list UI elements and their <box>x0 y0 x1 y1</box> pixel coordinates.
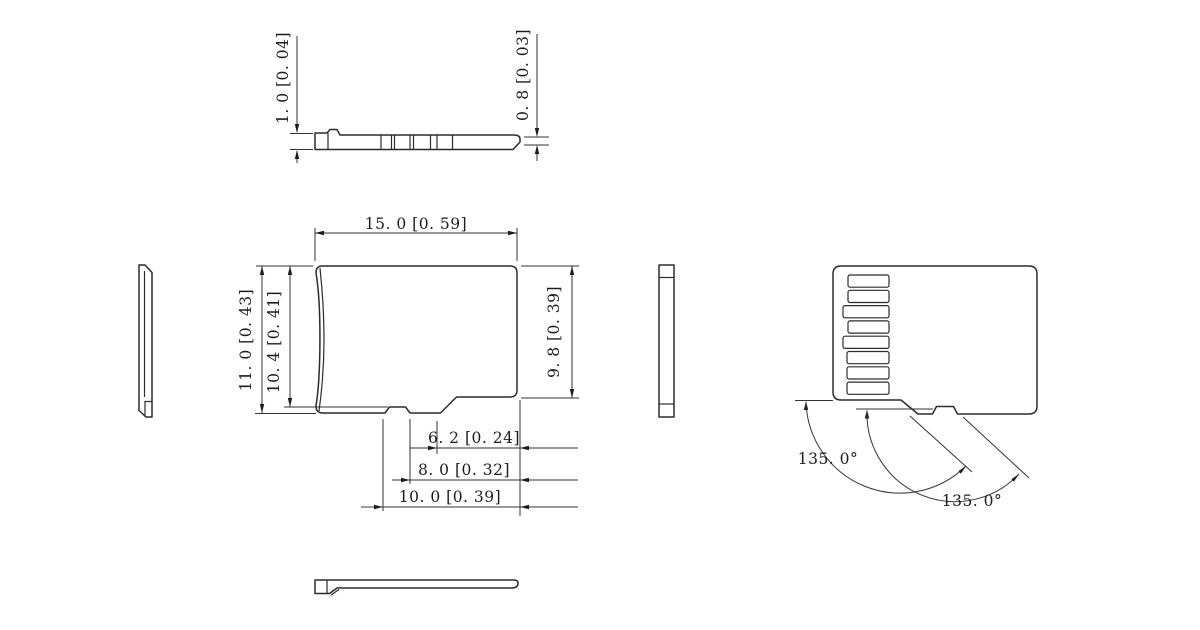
dim-width-15_0: 15. 0 [0. 59] <box>315 215 517 261</box>
dim-thickness-1_0: 1. 0 [0. 04] <box>274 32 313 163</box>
dim-height-9_8-label: 9. 8 [0. 39] <box>545 286 563 378</box>
top-profile-outline <box>315 130 520 150</box>
contact-pad-8 <box>847 382 889 394</box>
front-view: 15. 0 [0. 59] 11. 0 [0. 43] 10. 4 [0. 41… <box>237 215 579 516</box>
contact-pads <box>843 275 889 394</box>
technical-drawing-page: 1. 0 [0. 04] 0. 8 [0. 03] 15. <box>0 0 1200 630</box>
dim-angle-left-135: 135. 0° <box>795 401 972 494</box>
bottom-edge-profile-view <box>315 580 518 595</box>
right-side-outline <box>659 265 674 417</box>
dim-notch-6_2-label: 6. 2 [0. 24] <box>428 429 520 447</box>
contact-pad-3 <box>843 306 889 318</box>
dim-notch-8_0-label: 8. 0 [0. 32] <box>418 461 510 479</box>
top-edge-profile-view: 1. 0 [0. 04] 0. 8 [0. 03] <box>274 29 549 163</box>
back-view: 135. 0° 135. 0° <box>795 266 1037 510</box>
dim-height-10_4-label: 10. 4 [0. 41] <box>265 291 283 393</box>
bottom-profile-outline <box>315 580 518 594</box>
dim-height-10_4: 10. 4 [0. 41] <box>265 266 388 407</box>
left-side-outline <box>139 265 152 417</box>
contact-pad-7 <box>847 367 889 379</box>
dim-thickness-1_0-label: 1. 0 [0. 04] <box>274 32 292 124</box>
right-side-view <box>659 265 674 417</box>
dim-angle-right-135-label: 135. 0° <box>942 492 1003 510</box>
dim-height-9_8: 9. 8 [0. 39] <box>521 266 579 398</box>
contact-pad-6 <box>847 352 889 364</box>
left-side-view <box>139 265 152 417</box>
dim-thickness-0_8-label: 0. 8 [0. 03] <box>514 29 532 121</box>
back-card-outline <box>833 266 1037 414</box>
front-card-outline <box>316 266 517 413</box>
dim-height-11_0-label: 11. 0 [0. 43] <box>237 289 255 391</box>
microsd-dimension-drawing: 1. 0 [0. 04] 0. 8 [0. 03] 15. <box>0 0 1200 630</box>
dim-notch-10_0-label: 10. 0 [0. 39] <box>399 488 501 506</box>
dim-angle-right-135: 135. 0° <box>856 409 1029 510</box>
dim-angle-left-135-label: 135. 0° <box>798 450 859 468</box>
contact-pad-2 <box>848 290 889 302</box>
contact-pad-4 <box>848 321 889 333</box>
top-profile-pad-divider-ticks <box>381 136 453 150</box>
dim-width-15_0-label: 15. 0 [0. 59] <box>365 215 467 233</box>
contact-pad-1 <box>848 275 889 287</box>
contact-pad-5 <box>843 336 889 348</box>
